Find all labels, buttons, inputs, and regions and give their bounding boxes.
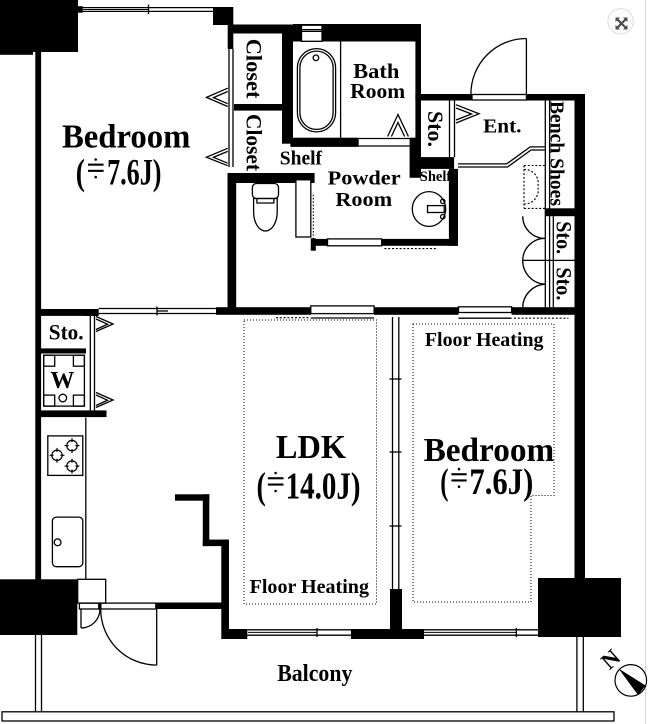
svg-text:Powder: Powder (328, 167, 401, 189)
svg-text:LDK: LDK (276, 429, 347, 466)
svg-text:Bedroom: Bedroom (62, 118, 191, 155)
svg-text:Sto.: Sto. (49, 320, 84, 345)
svg-text:Bench Shoes: Bench Shoes (546, 101, 568, 206)
svg-text:Shelf: Shelf (280, 147, 323, 169)
svg-text:(: ( (440, 462, 448, 503)
svg-text:Sto.: Sto. (423, 111, 448, 147)
svg-text:Room: Room (350, 79, 406, 103)
svg-text:Ent.: Ent. (483, 115, 521, 137)
svg-text:Floor Heating: Floor Heating (425, 329, 544, 351)
svg-text:Sto.: Sto. (551, 221, 576, 254)
svg-text:(: ( (76, 152, 85, 193)
svg-text:Shelf: Shelf (420, 169, 452, 185)
svg-text:Closet: Closet (242, 114, 267, 172)
svg-text:14.0J): 14.0J) (286, 466, 361, 508)
svg-text:Floor Heating: Floor Heating (250, 576, 369, 598)
svg-text:Room: Room (335, 189, 392, 211)
svg-text:Closet: Closet (242, 39, 267, 99)
svg-text:Balcony: Balcony (277, 661, 352, 687)
svg-text:7.6J): 7.6J) (107, 152, 161, 193)
svg-text:Sto.: Sto. (551, 267, 576, 300)
svg-text:7.6J): 7.6J) (469, 462, 533, 503)
svg-text:W: W (50, 368, 74, 394)
svg-text:(: ( (257, 466, 266, 508)
